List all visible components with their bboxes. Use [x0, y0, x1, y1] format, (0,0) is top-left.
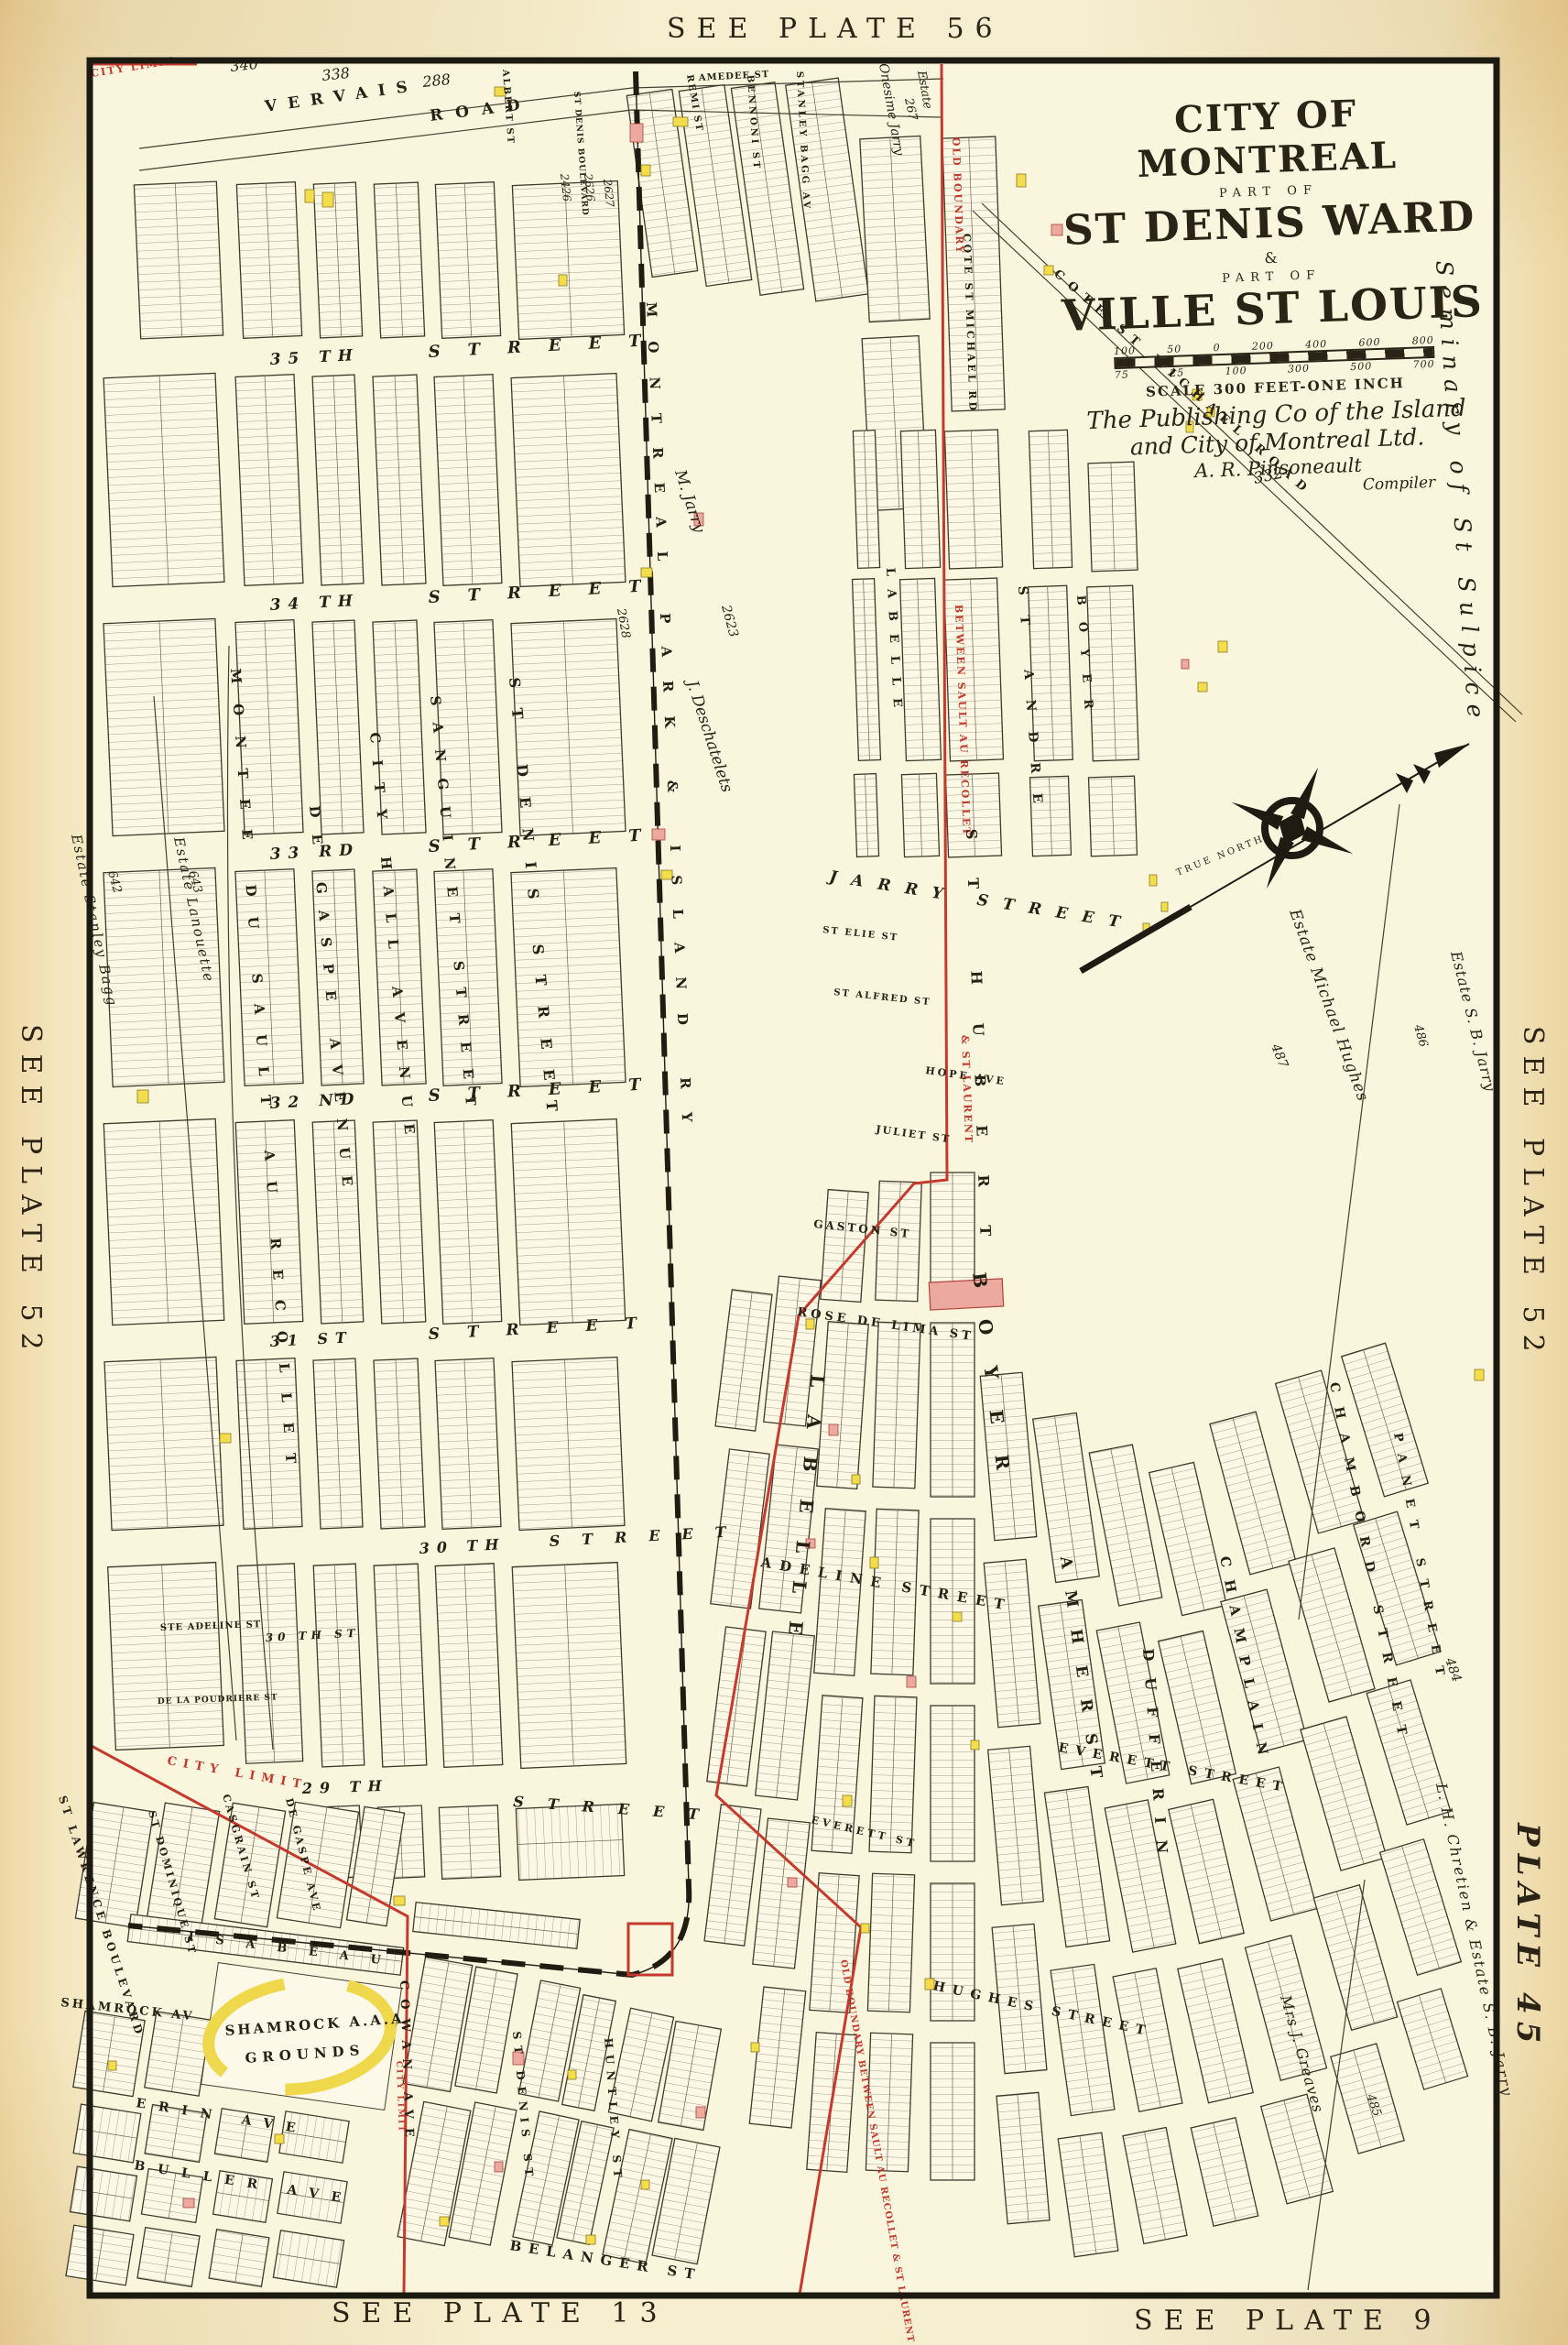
lot-number-338: 338: [321, 64, 350, 84]
scale-tick: 400: [1305, 338, 1327, 351]
building: [852, 1475, 860, 1484]
building: [1017, 174, 1026, 187]
atlas-plate: VERVAIS ROAD 340 338 288 CITY LIMIT ALBE…: [0, 0, 1568, 2345]
building: [870, 1557, 878, 1568]
building: [559, 275, 567, 286]
building: [641, 2180, 649, 2189]
title-block: CITY OF MONTREAL PART OF ST DENIS WARD &…: [1044, 88, 1499, 506]
building: [108, 2061, 116, 2070]
scale-tick: 100: [1225, 365, 1247, 377]
building: [751, 2043, 759, 2052]
plate-ref-bottom-left: SEE PLATE 13: [332, 2297, 669, 2329]
building: [586, 2235, 595, 2244]
scale-tick: 500: [1350, 360, 1372, 373]
building: [495, 2162, 503, 2172]
plate-number: PLATE 45: [1509, 1823, 1546, 2050]
building: [1149, 875, 1157, 886]
building: [1475, 1369, 1484, 1380]
plate-ref-top: SEE PLATE 56: [667, 13, 1004, 45]
scale-bar: 100500200400600800 7525100300500700: [1114, 334, 1435, 381]
building: [971, 1740, 979, 1750]
building: [322, 192, 333, 207]
scale-tick: 200: [1252, 340, 1274, 353]
lot-number-288: 288: [420, 71, 451, 91]
building: [1181, 660, 1189, 669]
scale-tick: 75: [1115, 369, 1129, 382]
building: [275, 2134, 284, 2143]
plate-ref-left: SEE PLATE 52: [15, 1024, 47, 1361]
building: [568, 2070, 576, 2079]
building: [394, 1896, 405, 1905]
scale-tick: 0: [1213, 342, 1220, 354]
building: [673, 117, 688, 126]
building: [953, 1612, 962, 1621]
scale-tick: 600: [1358, 336, 1380, 349]
building: [843, 1795, 852, 1806]
plate-ref-right: SEE PLATE 52: [1517, 1026, 1549, 1363]
plate-ref-bottom-right: SEE PLATE 9: [1134, 2305, 1443, 2337]
building: [1218, 641, 1227, 652]
scale-tick: 800: [1412, 334, 1434, 347]
scale-tick: 700: [1412, 358, 1434, 371]
building: [630, 124, 643, 142]
street-29th: 29 TH: [300, 1777, 388, 1797]
building: [788, 1878, 797, 1887]
building: [440, 2217, 449, 2226]
building: [183, 2198, 194, 2208]
scale-tick: 50: [1167, 343, 1181, 355]
title-city: CITY OF MONTREAL: [1044, 88, 1488, 190]
building: [1161, 902, 1168, 911]
building: [1198, 682, 1207, 692]
building: [220, 1434, 231, 1443]
building: [907, 1676, 916, 1687]
building: [641, 165, 650, 176]
building: [829, 1424, 838, 1435]
building: [137, 1090, 148, 1103]
building: [861, 1924, 869, 1933]
building: [305, 190, 314, 202]
scale-tick: 300: [1288, 363, 1310, 376]
building: [696, 2107, 705, 2118]
scale-tick: 100: [1114, 344, 1136, 357]
scale-tick: 25: [1170, 366, 1184, 379]
